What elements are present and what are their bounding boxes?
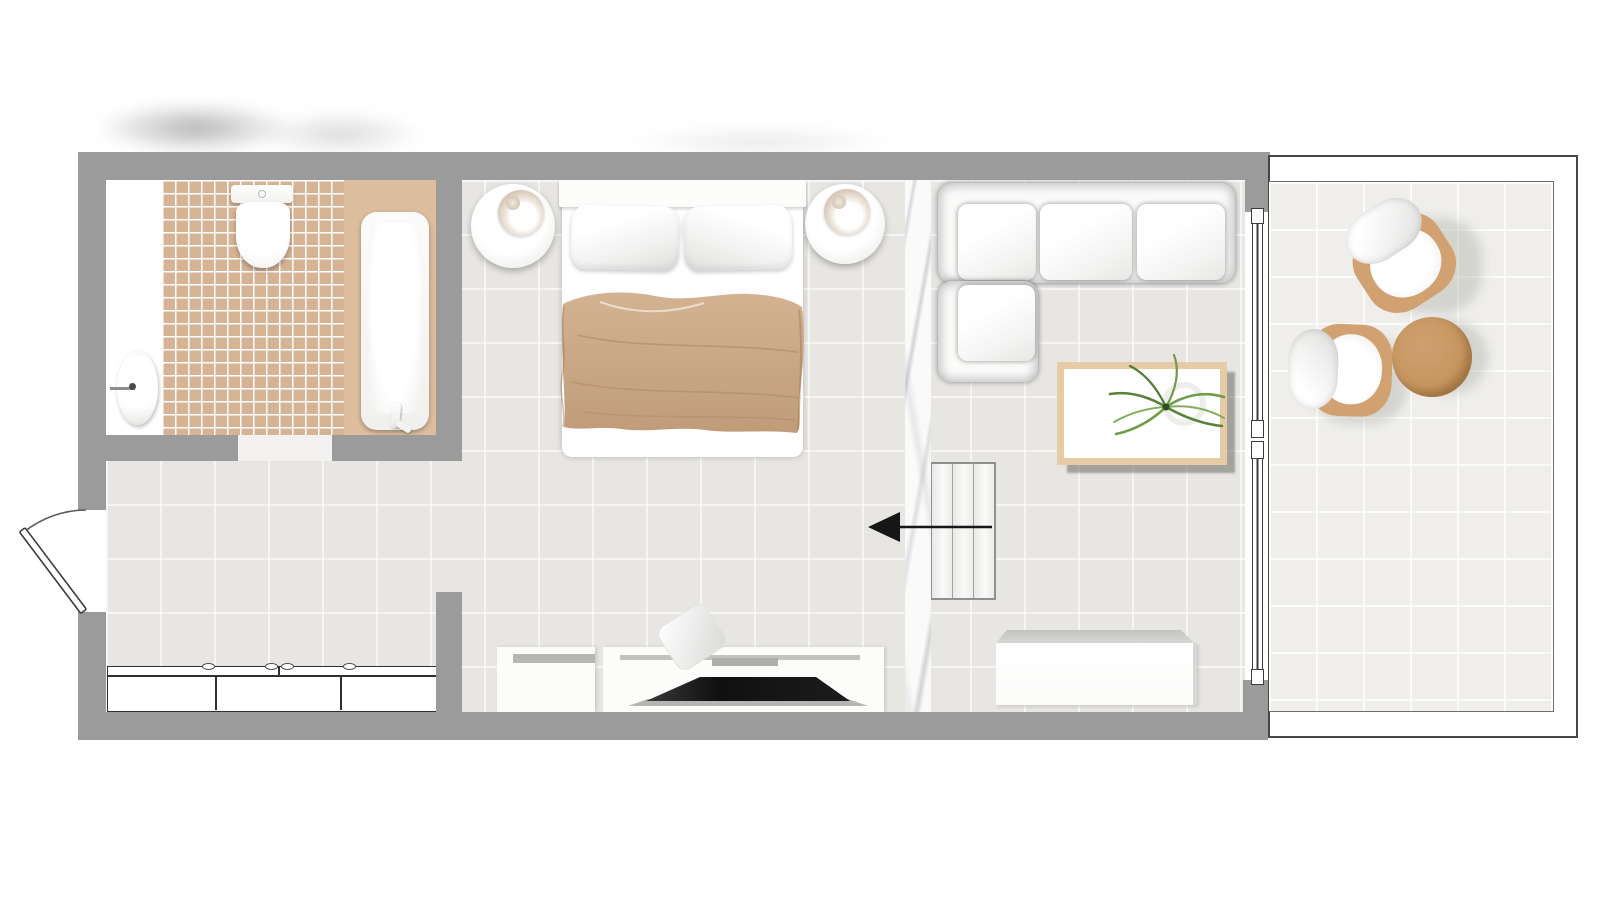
partition-panel [953, 464, 974, 598]
wall-left-lower [78, 612, 106, 712]
toilet-bowl [236, 202, 290, 268]
wardrobe-front-line [108, 675, 446, 677]
sofa-cushion [958, 204, 1036, 280]
sofa-cushion [1137, 204, 1225, 280]
wall-top [78, 152, 1270, 180]
tv-console [603, 647, 884, 712]
bed-pillow-right [683, 205, 792, 271]
wardrobe-handle [265, 663, 278, 670]
entrance-door-icon [19, 510, 86, 613]
glass-door-cap [1251, 208, 1264, 224]
floor-plan [0, 0, 1600, 900]
bed-headboard [559, 180, 806, 207]
sideboard [996, 643, 1197, 705]
table-lamp-right [824, 189, 870, 235]
coffee-table [1057, 362, 1227, 465]
built-in-wardrobe [107, 666, 447, 712]
room-living [931, 180, 1245, 712]
table-lamp-left [498, 190, 544, 236]
wall-bottom [78, 712, 1268, 740]
wall-bathroom-bottom-right [332, 435, 436, 461]
wardrobe-divider [340, 675, 342, 710]
wardrobe-handle [202, 663, 215, 670]
wardrobe-center-tick [278, 667, 280, 676]
sofa-cushion [958, 285, 1035, 361]
console-recess [712, 658, 778, 666]
small-cabinet [497, 647, 595, 712]
sofa-cushion [1040, 204, 1132, 280]
sliding-partition [930, 462, 996, 600]
sofa-return [938, 281, 1038, 382]
sofa-back-top [938, 183, 1235, 283]
glass-door-cap [1251, 669, 1264, 685]
shadow-smudge [255, 112, 425, 156]
wall-hall-stub [436, 592, 462, 712]
chair-pillow [1287, 328, 1340, 410]
glass-door-cap [1251, 420, 1264, 438]
glass-door-cap [1251, 441, 1264, 459]
balcony-armchair-bottom [1288, 316, 1396, 424]
lamp-finial-left [506, 196, 520, 210]
wardrobe-handle [281, 663, 294, 670]
washbasin-drain [129, 383, 136, 390]
wall-marble-partition [905, 180, 931, 712]
wall-left-upper [78, 180, 106, 510]
partition-panel [932, 464, 953, 598]
bathroom-door-threshold [238, 435, 332, 461]
cabinet-top-recess [513, 654, 595, 663]
wardrobe-divider [215, 675, 217, 710]
toilet-button [258, 190, 266, 198]
wall-bathroom-bottom-left [106, 435, 238, 461]
glass-door-segment [1252, 441, 1263, 685]
bed-pillow-left [570, 205, 679, 271]
balcony-round-table [1392, 317, 1472, 397]
wall-bathroom-right [436, 180, 462, 461]
bathtub-basin [369, 223, 421, 413]
wardrobe-handle [343, 663, 356, 670]
partition-panel [974, 464, 994, 598]
glass-door-segment [1252, 212, 1263, 438]
lamp-finial-right [832, 195, 846, 209]
room-bedroom [462, 180, 905, 712]
double-bed [562, 180, 803, 457]
